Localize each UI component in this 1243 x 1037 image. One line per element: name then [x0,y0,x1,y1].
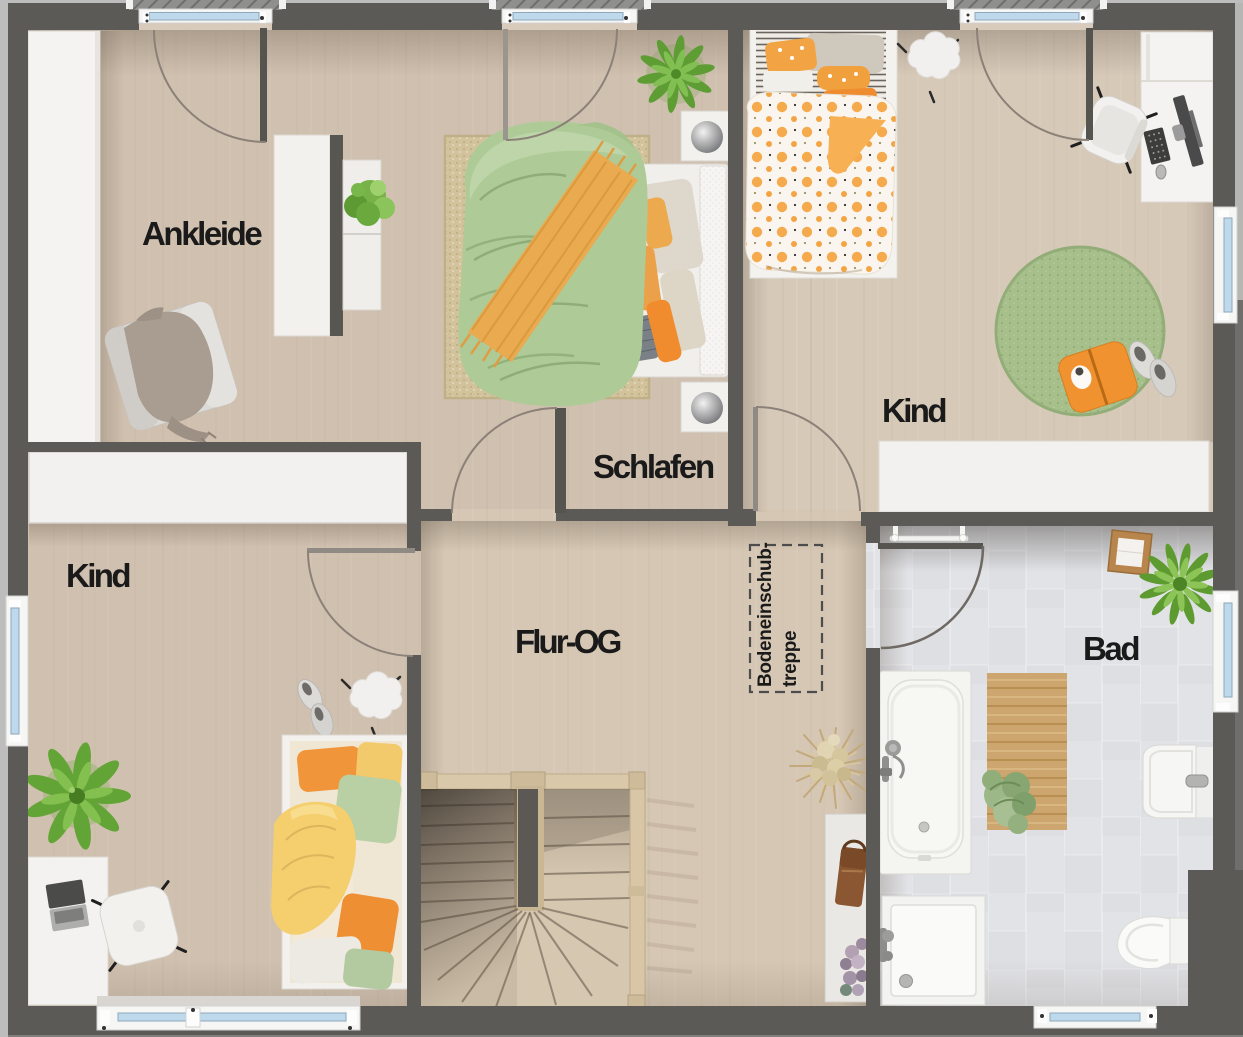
svg-text:Kind: Kind [882,392,945,429]
svg-text:Ankleide: Ankleide [142,215,262,252]
svg-text:Flur-OG: Flur-OG [515,623,621,660]
svg-text:Bad: Bad [1083,630,1138,667]
svg-text:Bodeneinschub-: Bodeneinschub- [755,542,776,687]
svg-text:Schlafen: Schlafen [593,448,714,485]
svg-text:Kind: Kind [66,557,129,594]
svg-text:treppe: treppe [780,631,801,687]
